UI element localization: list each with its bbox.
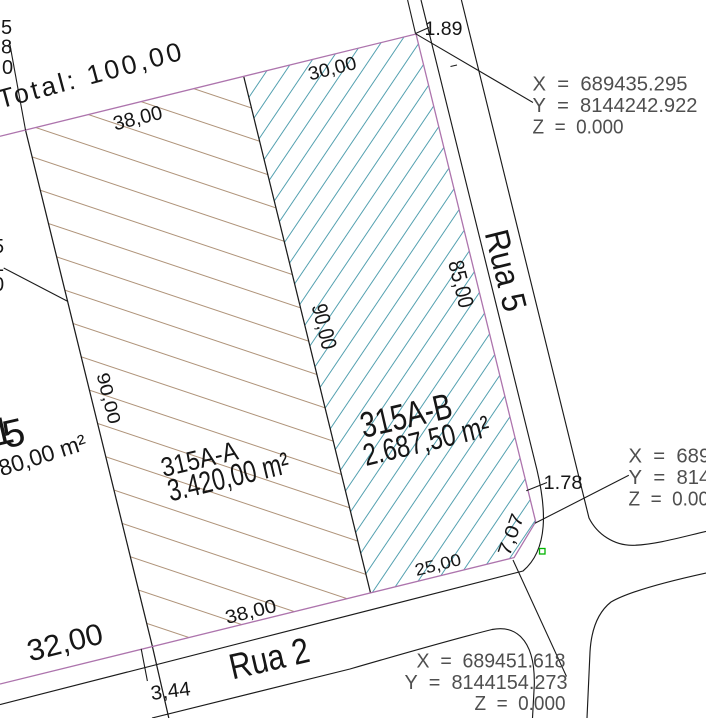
svg-text:1: 1	[0, 254, 4, 276]
svg-text:1.78: 1.78	[544, 472, 583, 494]
svg-text:X = 689451.618: X = 689451.618	[417, 650, 566, 673]
svg-text:X = 689469.259: X = 689469.259	[629, 445, 706, 468]
svg-text:Z = 0.000: Z = 0.000	[475, 692, 566, 715]
svg-text:0: 0	[2, 57, 13, 79]
svg-text:Y = 8144242.922: Y = 8144242.922	[533, 94, 698, 117]
svg-text:Y = 8144189.110: Y = 8144189.110	[629, 466, 706, 489]
svg-text:X = 689435.295: X = 689435.295	[533, 73, 688, 96]
svg-text:1.89: 1.89	[425, 18, 463, 40]
svg-text:8: 8	[1, 37, 12, 59]
svg-text:Z = 0.000: Z = 0.000	[629, 488, 706, 511]
svg-text:Z = 0.000: Z = 0.000	[533, 116, 624, 139]
svg-text:0: 0	[0, 274, 4, 296]
svg-text:Y = 8144154.273: Y = 8144154.273	[405, 671, 568, 694]
